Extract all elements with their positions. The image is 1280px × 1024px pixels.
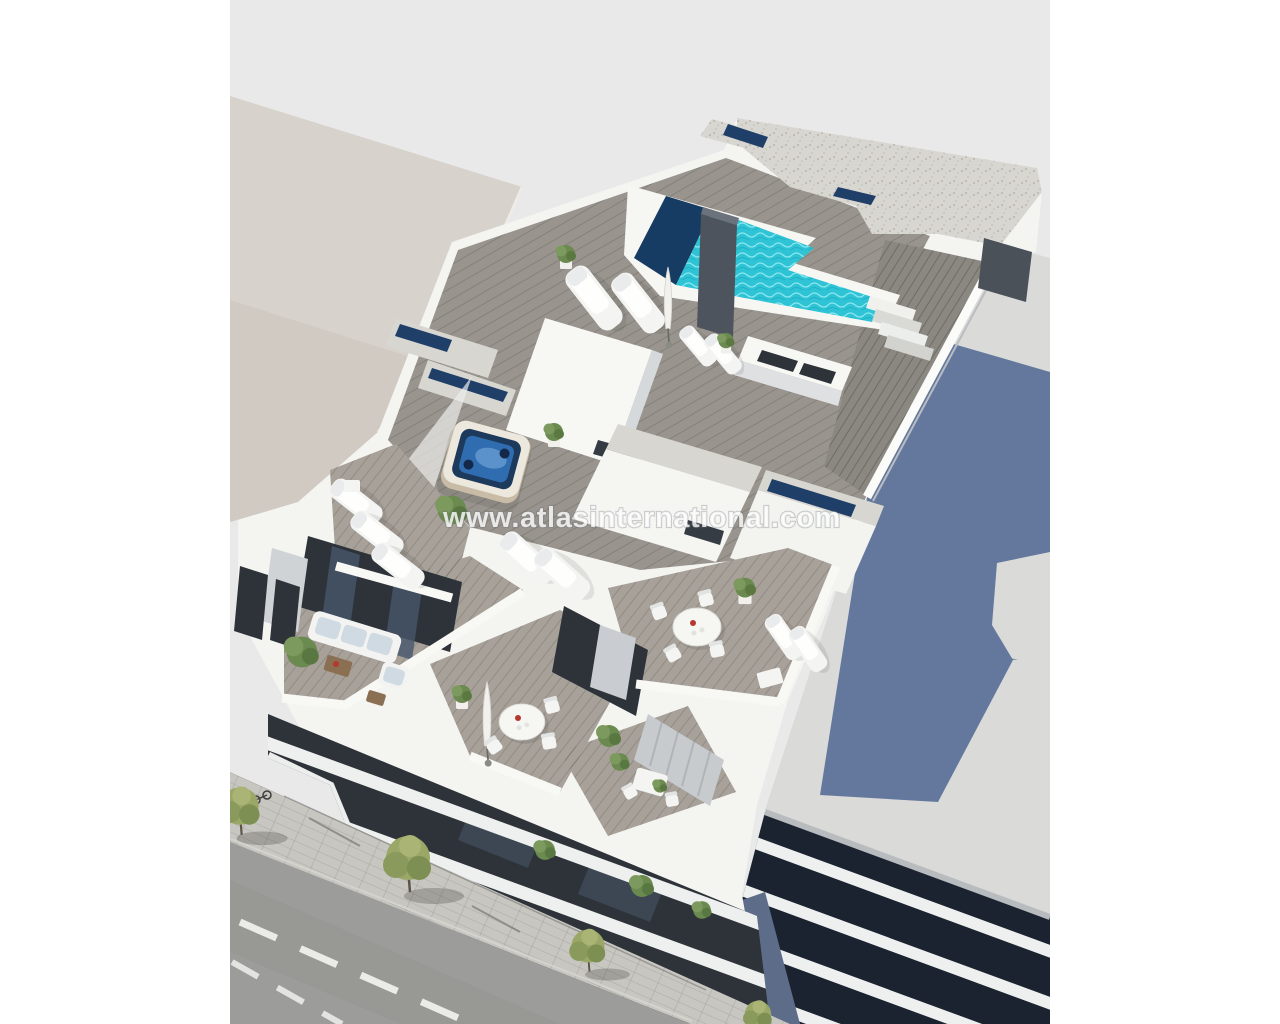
property-render: www.atlasinternational.com — [0, 0, 1280, 1024]
side-table — [344, 480, 360, 492]
dining-chair — [541, 732, 558, 750]
table-accent — [690, 620, 696, 626]
photo-area: www.atlasinternational.com — [219, 0, 1060, 1024]
screenshot-root: www.atlasinternational.com — [0, 0, 1280, 1024]
table-accent — [333, 661, 339, 667]
watermark: www.atlasinternational.com — [442, 502, 841, 534]
dining-chair — [664, 791, 679, 807]
table-accent — [515, 715, 521, 721]
facade-window — [234, 566, 268, 640]
chimney — [697, 214, 737, 338]
